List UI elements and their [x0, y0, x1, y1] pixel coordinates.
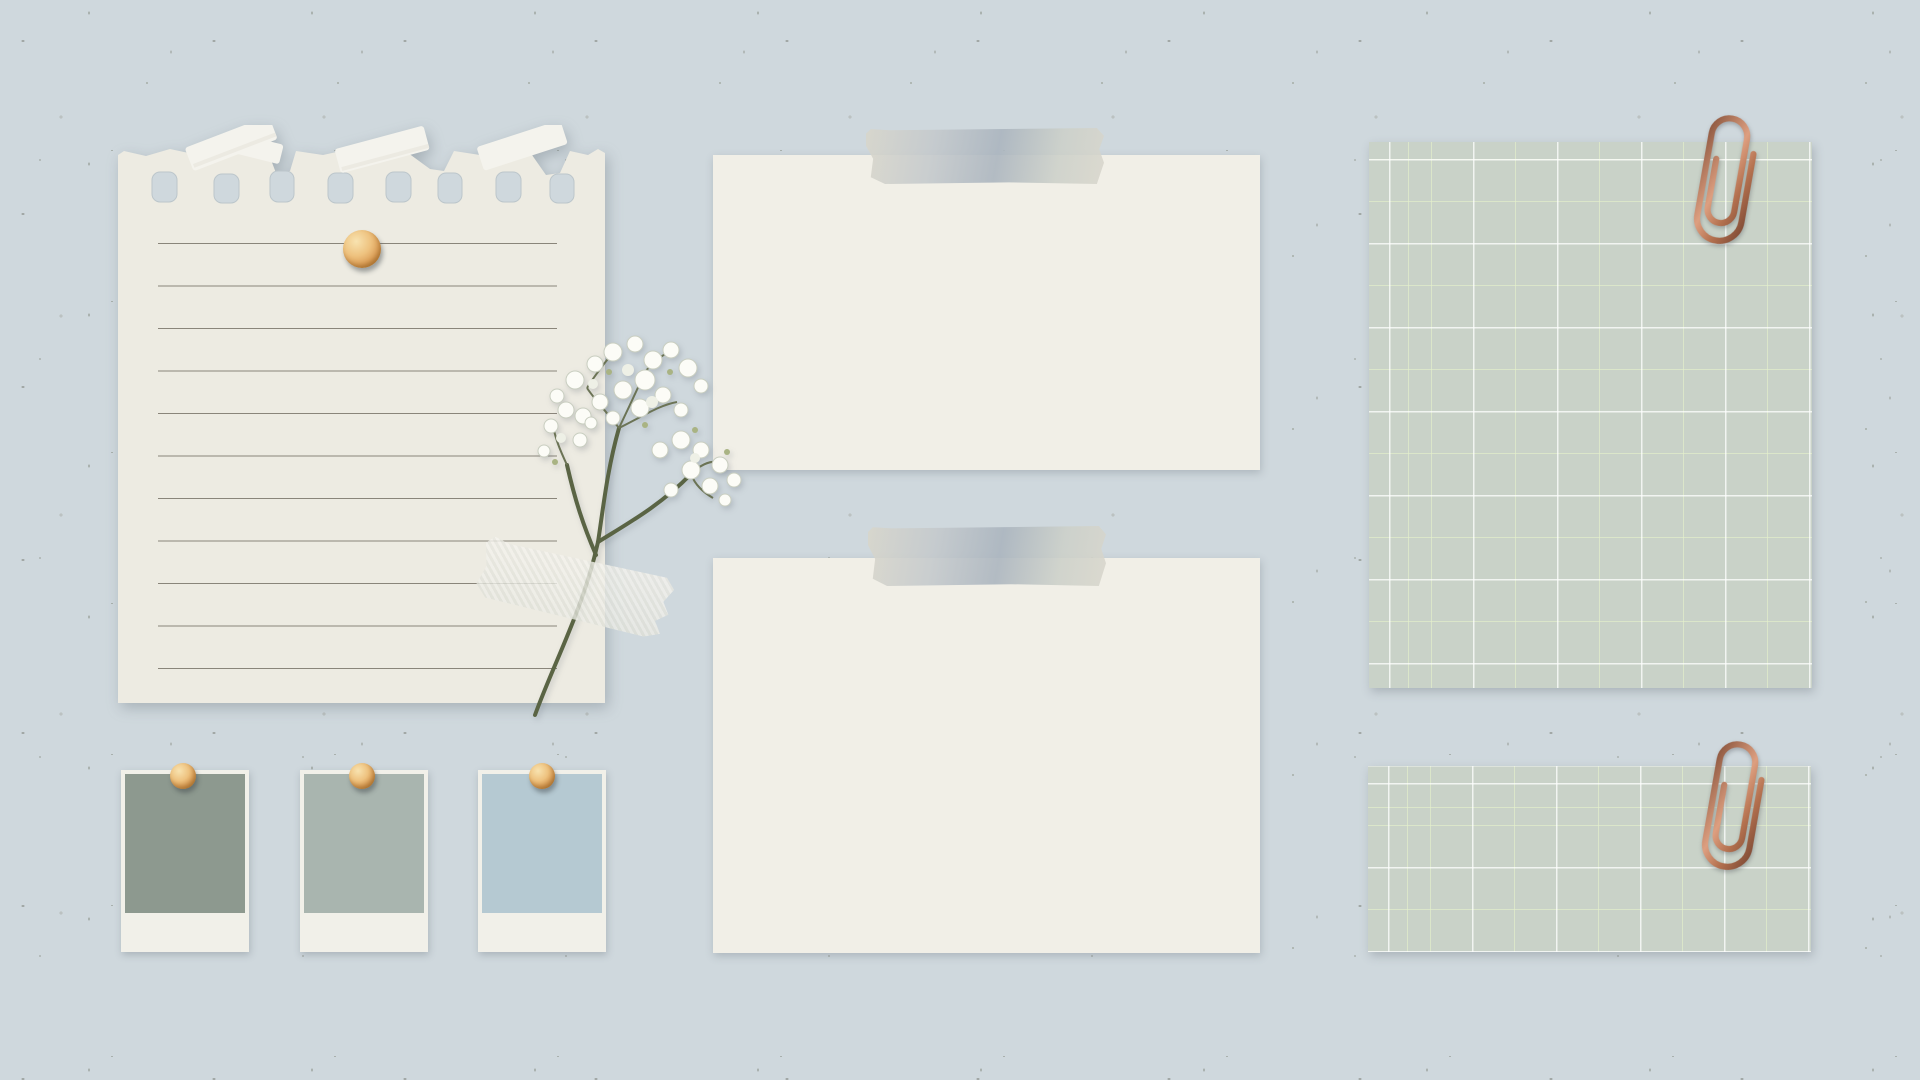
swatch-gray-green	[304, 774, 424, 913]
blank-note-card-2	[713, 558, 1260, 953]
color-swatch-card-2	[300, 770, 428, 952]
swatch-sage-green	[125, 774, 245, 913]
gold-pushpin-icon	[343, 230, 381, 268]
swatch-powder-blue	[482, 774, 602, 913]
gold-pushpin-icon	[170, 763, 196, 789]
color-swatch-card-1	[121, 770, 249, 952]
blank-note-card-1	[713, 155, 1260, 470]
tape-strip-card-1	[866, 128, 1104, 184]
babys-breath-flower	[495, 310, 750, 725]
tape-strip-card-2	[868, 526, 1106, 586]
gold-pushpin-icon	[529, 763, 555, 789]
color-swatch-card-3	[478, 770, 606, 952]
moodboard-background	[0, 0, 1920, 1080]
torn-edge-and-scraps	[118, 125, 605, 210]
gold-pushpin-icon	[349, 763, 375, 789]
